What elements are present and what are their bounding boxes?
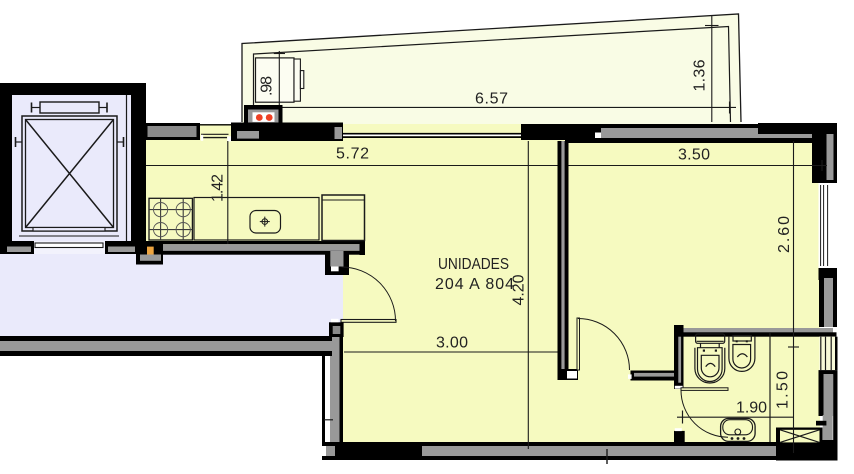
- svg-text:1.90: 1.90: [736, 400, 767, 417]
- svg-text:2.60: 2.60: [776, 216, 793, 253]
- svg-text:3.00: 3.00: [436, 335, 468, 352]
- svg-text:.98: .98: [258, 76, 275, 96]
- svg-text:5.72: 5.72: [336, 146, 369, 163]
- svg-text:6.57: 6.57: [475, 90, 508, 107]
- svg-text:UNIDADES: UNIDADES: [438, 256, 509, 273]
- svg-text:3.50: 3.50: [678, 147, 710, 164]
- svg-text:204 A 804: 204 A 804: [435, 276, 514, 293]
- svg-text:1.36: 1.36: [692, 59, 709, 91]
- svg-text:1.50: 1.50: [775, 371, 792, 409]
- svg-text:1.42: 1.42: [210, 174, 227, 202]
